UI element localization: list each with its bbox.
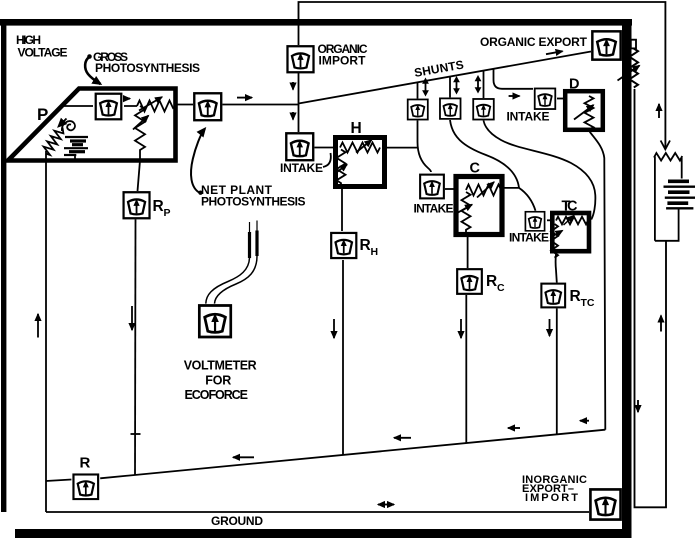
svg-text:R: R bbox=[153, 198, 164, 215]
svg-text:R: R bbox=[570, 288, 581, 305]
svg-text:INTAKE: INTAKE bbox=[509, 231, 549, 245]
svg-text:ECOFORCE: ECOFORCE bbox=[185, 388, 249, 402]
svg-text:P: P bbox=[37, 105, 48, 124]
svg-text:R: R bbox=[80, 455, 91, 472]
svg-text:PHOTOSYNTHESIS: PHOTOSYNTHESIS bbox=[201, 195, 306, 209]
svg-text:R: R bbox=[486, 273, 497, 290]
svg-text:C: C bbox=[470, 161, 481, 177]
svg-text:PHOTOSYNTHESIS: PHOTOSYNTHESIS bbox=[95, 61, 200, 75]
svg-text:TC: TC bbox=[562, 199, 579, 215]
svg-text:P: P bbox=[164, 207, 171, 219]
svg-text:C: C bbox=[497, 282, 505, 294]
svg-text:VOLTAGE: VOLTAGE bbox=[18, 46, 68, 60]
svg-text:SHUNTS: SHUNTS bbox=[413, 57, 465, 79]
svg-text:VOLTMETER: VOLTMETER bbox=[184, 359, 257, 373]
svg-text:GROUND: GROUND bbox=[211, 514, 263, 528]
svg-text:H: H bbox=[371, 246, 379, 258]
svg-text:R: R bbox=[360, 237, 371, 254]
svg-text:IMPORT: IMPORT bbox=[319, 54, 367, 68]
svg-text:D: D bbox=[569, 77, 579, 93]
svg-text:TC: TC bbox=[581, 297, 595, 309]
svg-text:INTAKE: INTAKE bbox=[414, 202, 454, 216]
svg-text:INTAKE: INTAKE bbox=[507, 110, 550, 124]
svg-text:H: H bbox=[351, 120, 362, 137]
svg-text:FOR: FOR bbox=[205, 374, 231, 388]
svg-text:INTAKE: INTAKE bbox=[280, 161, 323, 175]
svg-text:ORGANIC EXPORT: ORGANIC EXPORT bbox=[480, 35, 588, 49]
